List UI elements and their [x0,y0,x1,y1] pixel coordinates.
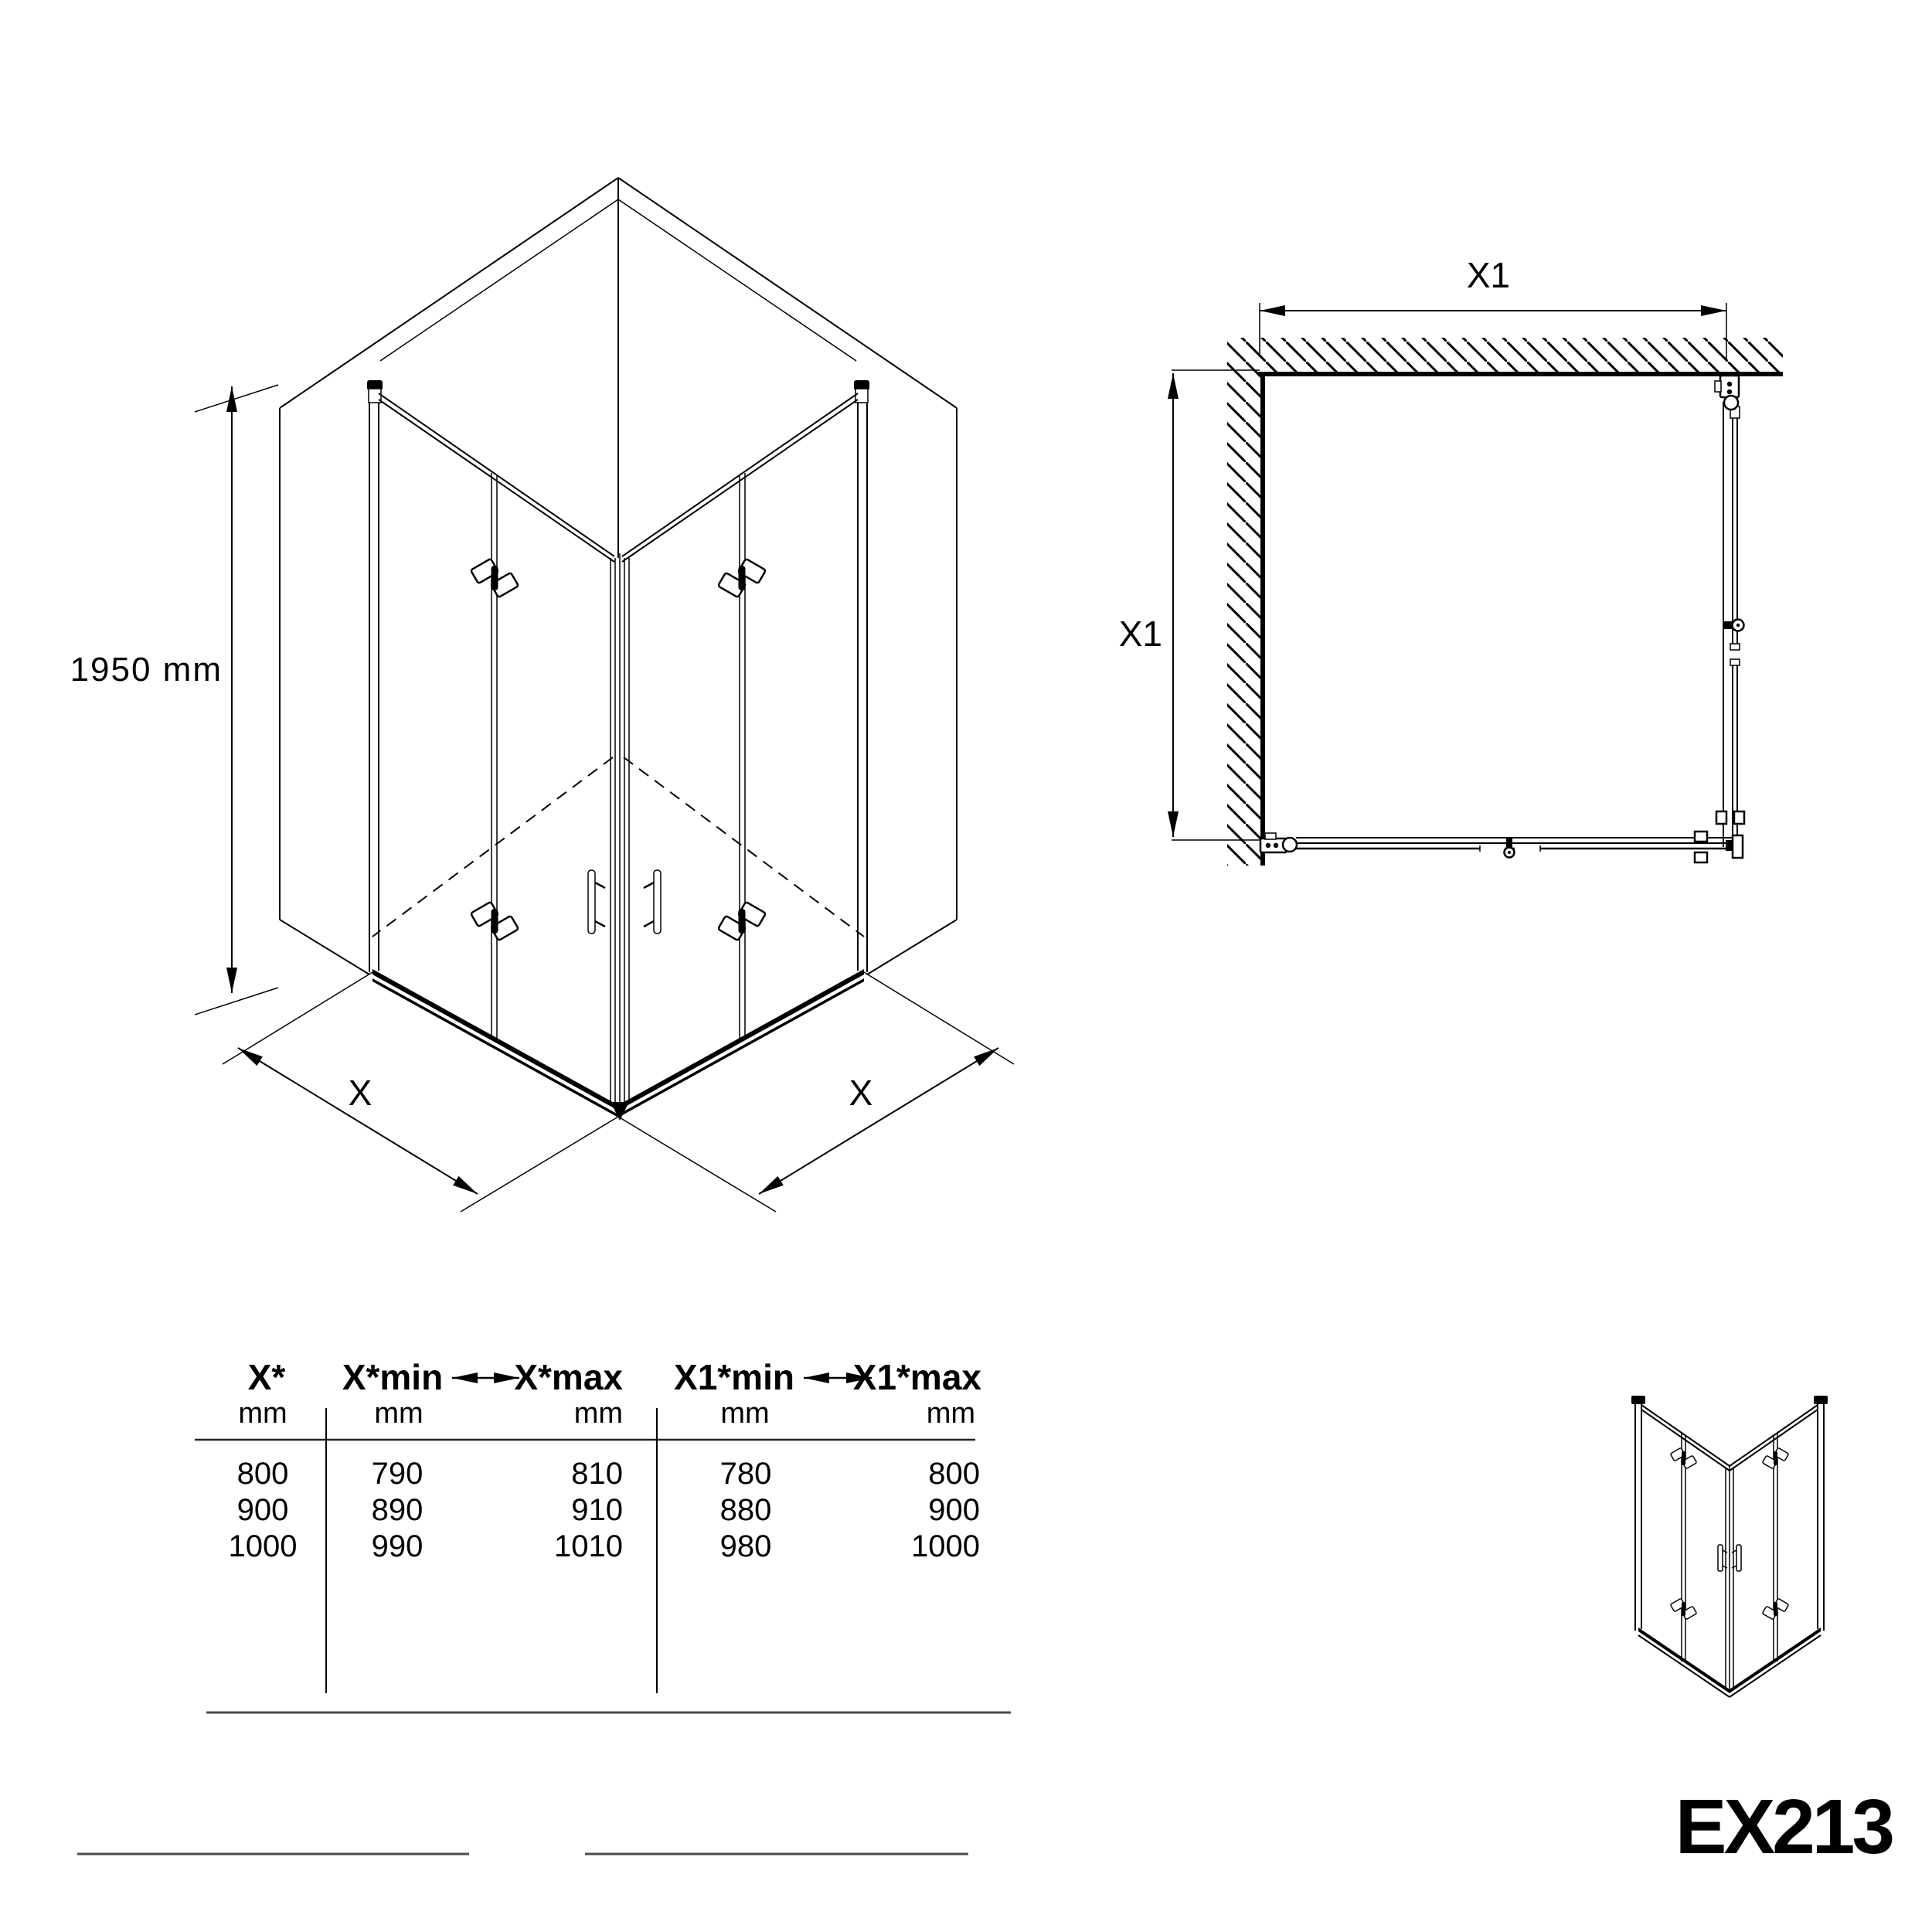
table-header-x1min: X1*min [674,1357,794,1397]
plan-fold-hinge-bottom [1506,837,1512,847]
unit-x1min: mm [720,1397,769,1430]
hinge-lower-left [471,902,519,940]
table-row: 1000 990 1010 980 1000 [229,1529,980,1563]
table-header-x1max: X1*max [853,1357,982,1397]
unit-x1max: mm [927,1397,975,1430]
svg-text:880: 880 [720,1493,772,1527]
width-label-right: X [849,1073,873,1113]
isometric-view: 1950 mm [70,178,1014,1212]
plan-bottom-glass [1260,833,1739,858]
plan-width-label: X1 [1467,255,1510,295]
svg-text:1000: 1000 [911,1529,980,1563]
svg-text:790: 790 [372,1457,423,1491]
door-swing-dashed-lines [372,757,864,937]
hinge-upper-right [718,559,766,597]
width-dimension-left: X [223,972,618,1212]
table-header-x: X* [248,1357,286,1397]
technical-drawing: 1950 mm [0,0,1932,1932]
height-dimension-label: 1950 mm [70,651,223,689]
plan-right-glass [1715,376,1744,847]
unit-xmax: mm [574,1397,623,1430]
height-dimension: 1950 mm [70,385,278,1015]
width-dimension-right: X [618,972,1014,1212]
product-thumbnail [1631,1396,1828,1697]
plan-view: X1 X1 [1119,255,1783,866]
door-handle-left [588,870,605,934]
plan-depth-label: X1 [1119,614,1162,654]
plan-pivot-bottom-left [1283,838,1297,852]
iso-fold-lines [492,473,745,1040]
model-label: EX213 [1675,1784,1893,1870]
svg-text:1000: 1000 [229,1529,298,1563]
plan-wall-hatching [1227,338,1783,866]
unit-x: mm [238,1397,287,1430]
table-header-xmin: X*min [342,1357,443,1397]
svg-text:890: 890 [372,1493,423,1527]
svg-text:1010: 1010 [554,1529,623,1563]
svg-text:980: 980 [720,1529,772,1563]
plan-fold-hinge-right [1723,621,1733,629]
width-label-left: X [349,1073,372,1113]
table-row: 900 890 910 880 900 [237,1493,980,1527]
svg-text:900: 900 [237,1493,289,1527]
svg-text:800: 800 [928,1457,980,1491]
iso-back-walls [280,178,957,975]
unit-xmin: mm [374,1397,423,1430]
svg-text:810: 810 [571,1457,623,1491]
door-handle-right [644,870,661,934]
iso-corner-post [611,553,629,1121]
size-table: X* X*min X*max X1*min X1*max mm mm mm mm… [195,1357,1011,1713]
svg-text:800: 800 [237,1457,289,1491]
table-row: 800 790 810 780 800 [237,1457,980,1491]
plan-pivot-top-right [1724,396,1738,410]
svg-text:780: 780 [720,1457,772,1491]
table-header-xmax: X*max [514,1357,623,1397]
hinge-lower-right [718,902,766,940]
svg-text:910: 910 [571,1493,623,1527]
iso-bottom-rails [372,969,864,1117]
svg-text:900: 900 [928,1493,980,1527]
hinge-upper-left [471,559,519,597]
svg-text:990: 990 [372,1529,423,1563]
